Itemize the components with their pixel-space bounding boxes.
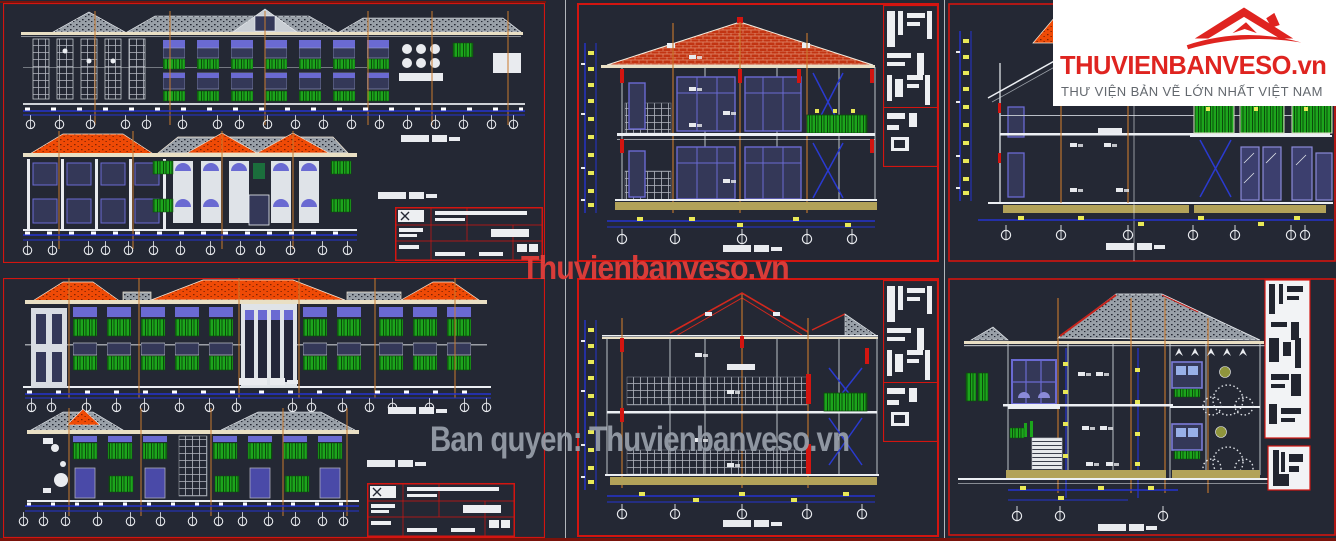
bottom-dimensions: [1008, 486, 1178, 500]
watermark-bottom: Ban quyen: Thuvienbanveso.vn: [430, 420, 849, 460]
elevation-b-arcade: [173, 161, 319, 225]
bottom-dimensions: [978, 216, 1333, 226]
drawing-label-bars: [367, 460, 426, 467]
grid-bubbles: [617, 229, 856, 244]
balcony-rail: [807, 115, 867, 133]
bay-window: [1008, 360, 1060, 409]
brand-logo: THUVIENBANVESO.vn THƯ VIỆN BẢN VẼ LỚN NH…: [1053, 0, 1336, 106]
viewport-elevations-1[interactable]: [3, 3, 545, 263]
rotated-title-strip: [883, 281, 938, 442]
sheet-edge-line: [944, 0, 945, 541]
red-roof-house-icon: [1180, 2, 1308, 52]
title-block: [368, 484, 515, 537]
grid-bubbles: [1001, 225, 1309, 240]
viewport-section-1[interactable]: [577, 3, 940, 263]
viewport-section-3[interactable]: [577, 278, 940, 538]
cad-canvas: Thuvienbanveso.vn Ban quyen: Thuvienbanv…: [0, 0, 1336, 541]
roof-edge: [988, 17, 1060, 102]
brand-tagline: THƯ VIỆN BẢN VẼ LỚN NHẤT VIỆT NAM: [1061, 84, 1323, 99]
balcony-rail: [824, 393, 867, 411]
drawing-label-bars: [1106, 243, 1165, 250]
viewport-elevations-2[interactable]: [3, 278, 545, 538]
trees: [1203, 385, 1253, 477]
elevation-b-grid-bubbles: [23, 241, 351, 255]
grid-bubbles: [1012, 506, 1167, 521]
right-windows: [1172, 362, 1202, 459]
bottom-dimensions: [607, 492, 875, 502]
watermark-center: Thuvienbanveso.vn: [521, 249, 789, 287]
floor-slab: [610, 477, 877, 485]
lower-row: [75, 468, 340, 498]
drawing-label-bars: [388, 407, 447, 414]
section-roof-outline: [670, 293, 877, 336]
bottom-dimensions: [607, 217, 875, 227]
elevation-c-roof: [31, 280, 479, 302]
elevation-a-grid-bubbles: [26, 115, 517, 129]
grid-bubbles: [617, 504, 866, 519]
right-facade: [1190, 103, 1332, 200]
dimension-column: [581, 320, 596, 490]
drawing-label-bars: [378, 192, 437, 199]
dimension-column: [956, 31, 971, 201]
center-columns: [241, 304, 297, 388]
elevation-b-roof: [28, 133, 348, 155]
rotated-title-strip: [883, 6, 938, 167]
legend-strip: [1265, 280, 1310, 490]
drawing-label-bars: [401, 135, 460, 142]
staircase: [1010, 421, 1062, 472]
section-roof: [971, 294, 1260, 340]
viewport-section-4[interactable]: [948, 278, 1336, 538]
brand-name: THUVIENBANVESO.vn: [1060, 50, 1326, 81]
upper-row: [73, 436, 342, 459]
garland-trim: [1175, 348, 1247, 356]
mesh-wall: [627, 377, 807, 405]
elevation-d-roof: [31, 409, 355, 430]
floor-slab: [615, 202, 877, 210]
drawing-label-bars: [723, 520, 782, 527]
drawing-label-bars: [1098, 524, 1157, 531]
dimension-column: [581, 43, 596, 213]
elevation-a-roof: [53, 9, 521, 32]
